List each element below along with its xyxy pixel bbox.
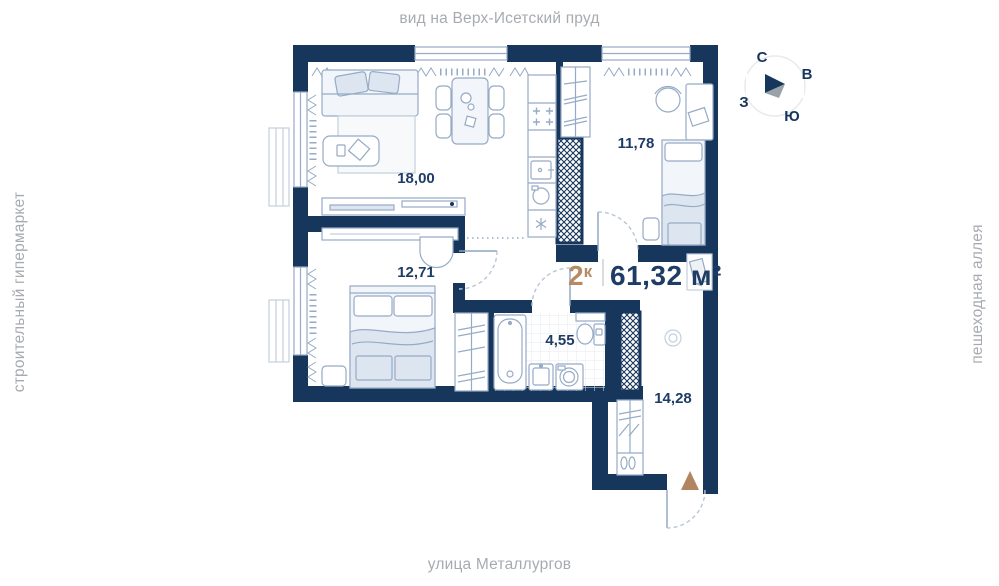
closet <box>455 313 488 391</box>
floorplan-page: вид на Верх-Исетский пруд улица Металлур… <box>0 0 999 586</box>
compass-north: С <box>757 49 768 66</box>
svg-text:2к: 2к <box>568 260 593 291</box>
compass-west: З <box>739 94 748 111</box>
dining-table <box>452 78 488 144</box>
bedroom-1-furniture <box>561 67 713 245</box>
area-bathroom: 4,55 <box>545 332 574 349</box>
bathtub-icon <box>494 315 526 390</box>
shelf <box>576 313 605 321</box>
stool <box>643 218 659 240</box>
bedroom-2-furniture <box>322 228 458 388</box>
compass-south: Ю <box>784 108 799 125</box>
rooms-count: 2 <box>568 260 584 291</box>
area-living-kitchen: 18,00 <box>397 170 435 187</box>
bedside-table <box>322 366 346 386</box>
door-arc-bathroom <box>532 268 570 306</box>
kitchen-sink-icon <box>531 161 554 179</box>
armchair <box>420 237 453 268</box>
door-arc-entrance <box>667 490 705 528</box>
entrance-arrow <box>681 471 699 490</box>
area-bedroom-2: 12,71 <box>397 264 435 281</box>
washing-machine-icon <box>556 364 583 390</box>
total-area: 61,32 м² <box>610 260 722 291</box>
apartment-summary: 2к 61,32 м² <box>568 259 722 291</box>
compass: С В Ю З <box>739 49 812 125</box>
desk-chair <box>656 88 680 112</box>
area-bedroom-1: 11,78 <box>618 135 655 152</box>
door-arc-bedroom-1 <box>598 212 638 252</box>
bath-sink-icon <box>529 364 553 390</box>
living-room-furniture <box>322 70 504 215</box>
kitchen-counter <box>528 75 556 237</box>
balcony-railings <box>269 128 289 362</box>
area-hallway: 14,28 <box>654 390 692 407</box>
rooms-suffix: к <box>584 262 593 281</box>
bathroom-fixtures <box>494 313 605 391</box>
compass-east: В <box>802 66 813 83</box>
floor-plan: 18,00 11,78 12,71 4,55 14,28 2к 61,32 м²… <box>0 0 999 586</box>
